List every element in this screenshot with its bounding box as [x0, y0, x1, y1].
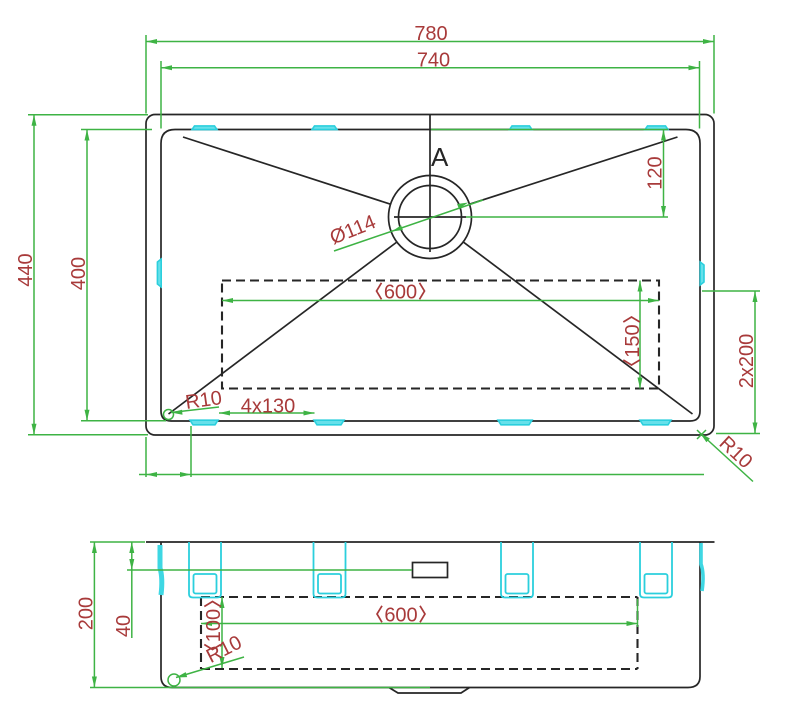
- svg-text:R10: R10: [715, 432, 757, 473]
- svg-text:200: 200: [76, 597, 98, 630]
- svg-text:A: A: [431, 142, 449, 172]
- svg-text:2x200: 2x200: [736, 334, 758, 389]
- svg-text:740: 740: [417, 50, 450, 72]
- svg-text:780: 780: [414, 23, 447, 45]
- svg-text:150: 150: [622, 324, 644, 357]
- svg-text:120: 120: [645, 156, 667, 189]
- svg-text:440: 440: [15, 253, 37, 286]
- svg-text:Ø114: Ø114: [327, 211, 379, 249]
- svg-text:600: 600: [384, 282, 417, 304]
- svg-text:R10: R10: [184, 387, 223, 414]
- svg-text:4x130: 4x130: [241, 396, 296, 418]
- svg-text:100: 100: [203, 609, 225, 642]
- svg-text:40: 40: [113, 615, 135, 637]
- svg-text:400: 400: [68, 257, 90, 290]
- svg-text:600: 600: [384, 605, 417, 627]
